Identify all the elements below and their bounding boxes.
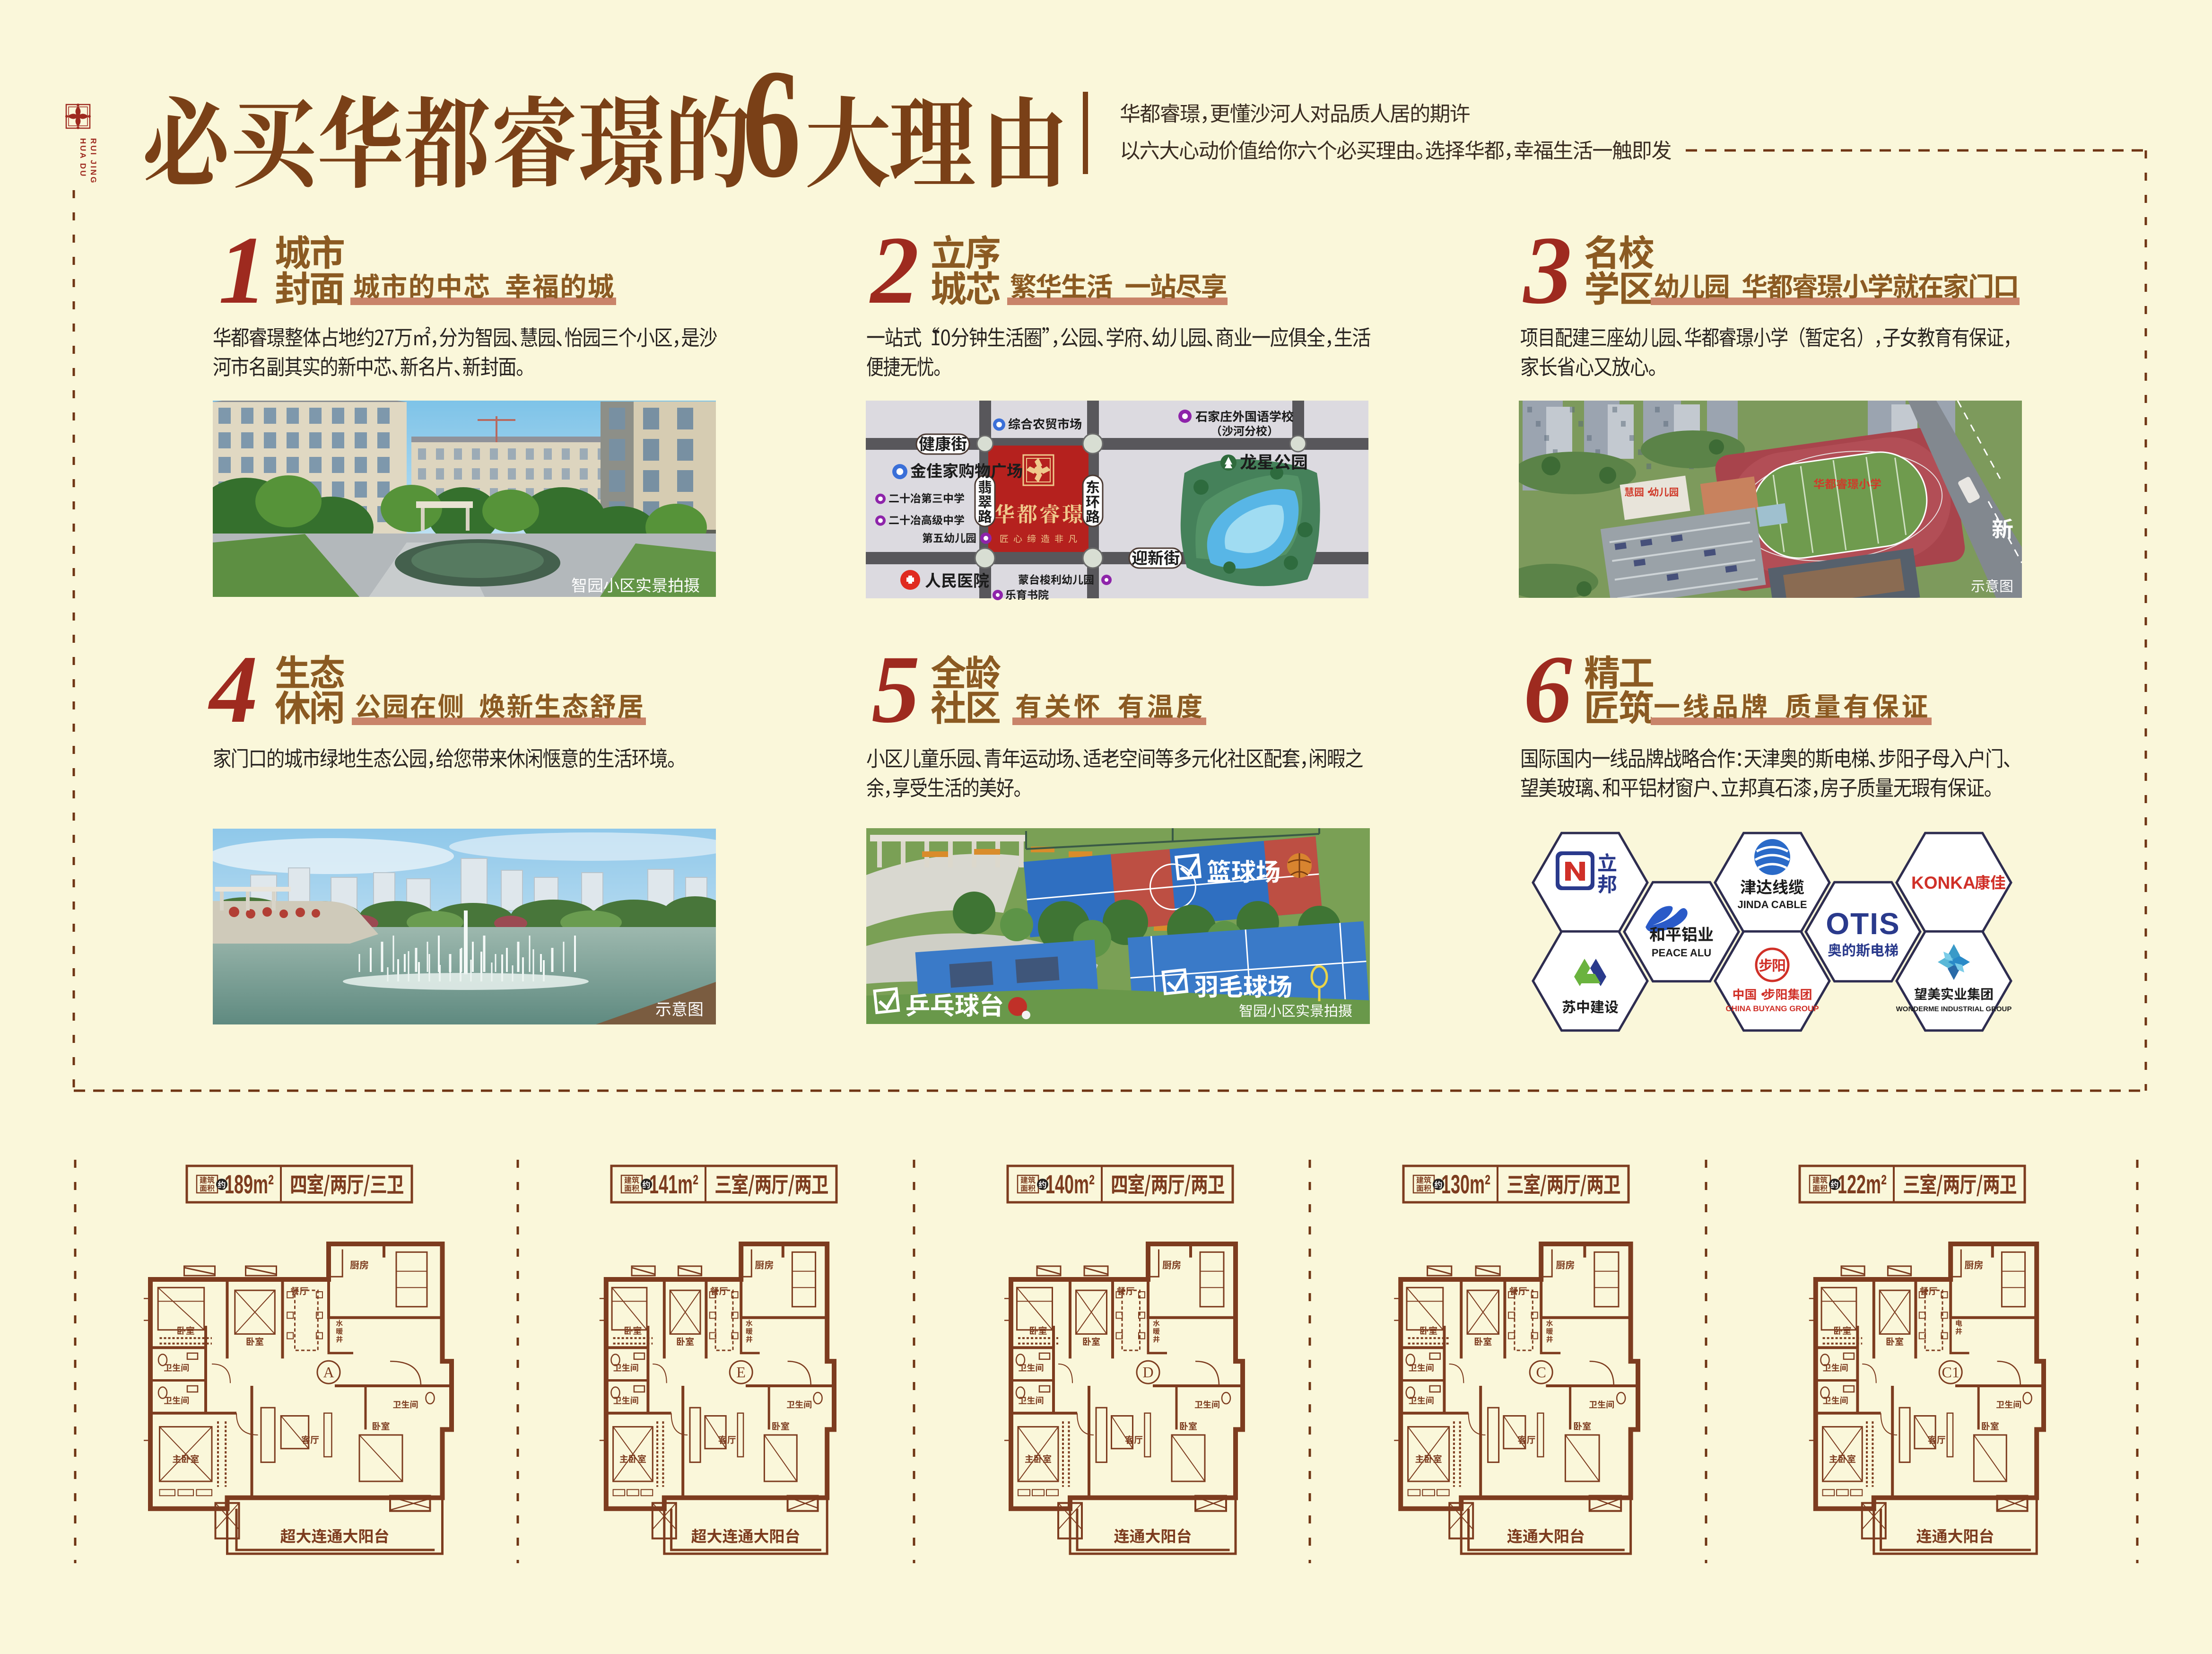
svg-text:6: 6 [1524, 636, 1572, 743]
svg-text:5: 5 [871, 636, 920, 743]
svg-text:C1: C1 [1942, 1364, 1959, 1381]
svg-text:1: 1 [218, 217, 267, 324]
svg-text:KONKA: KONKA [1911, 873, 1976, 893]
svg-text:WONDERME INDUSTRIAL GROUP: WONDERME INDUSTRIAL GROUP [1896, 1005, 2012, 1013]
svg-text:130m²: 130m² [1441, 1169, 1490, 1199]
svg-text:4: 4 [208, 636, 258, 743]
svg-text:A: A [323, 1364, 334, 1381]
svg-text:PEACE ALU: PEACE ALU [1652, 947, 1711, 959]
svg-text:6: 6 [742, 37, 801, 210]
svg-text:E: E [736, 1364, 746, 1381]
svg-text:D: D [1142, 1364, 1153, 1381]
svg-text:RUI JING: RUI JING [89, 138, 98, 184]
svg-text:3: 3 [1523, 217, 1572, 324]
svg-text:C: C [1536, 1364, 1546, 1381]
svg-text:189m²: 189m² [225, 1169, 274, 1199]
svg-text:JINDA CABLE: JINDA CABLE [1737, 899, 1807, 910]
svg-text:122m²: 122m² [1838, 1169, 1887, 1199]
svg-text:2: 2 [869, 217, 919, 324]
svg-text:HUA DU: HUA DU [78, 138, 87, 177]
svg-text:141m²: 141m² [649, 1169, 698, 1199]
svg-text:140m²: 140m² [1045, 1169, 1095, 1199]
svg-text:CHINA BUYANG GROUP: CHINA BUYANG GROUP [1725, 1004, 1819, 1013]
svg-text:OTIS: OTIS [1826, 907, 1900, 941]
